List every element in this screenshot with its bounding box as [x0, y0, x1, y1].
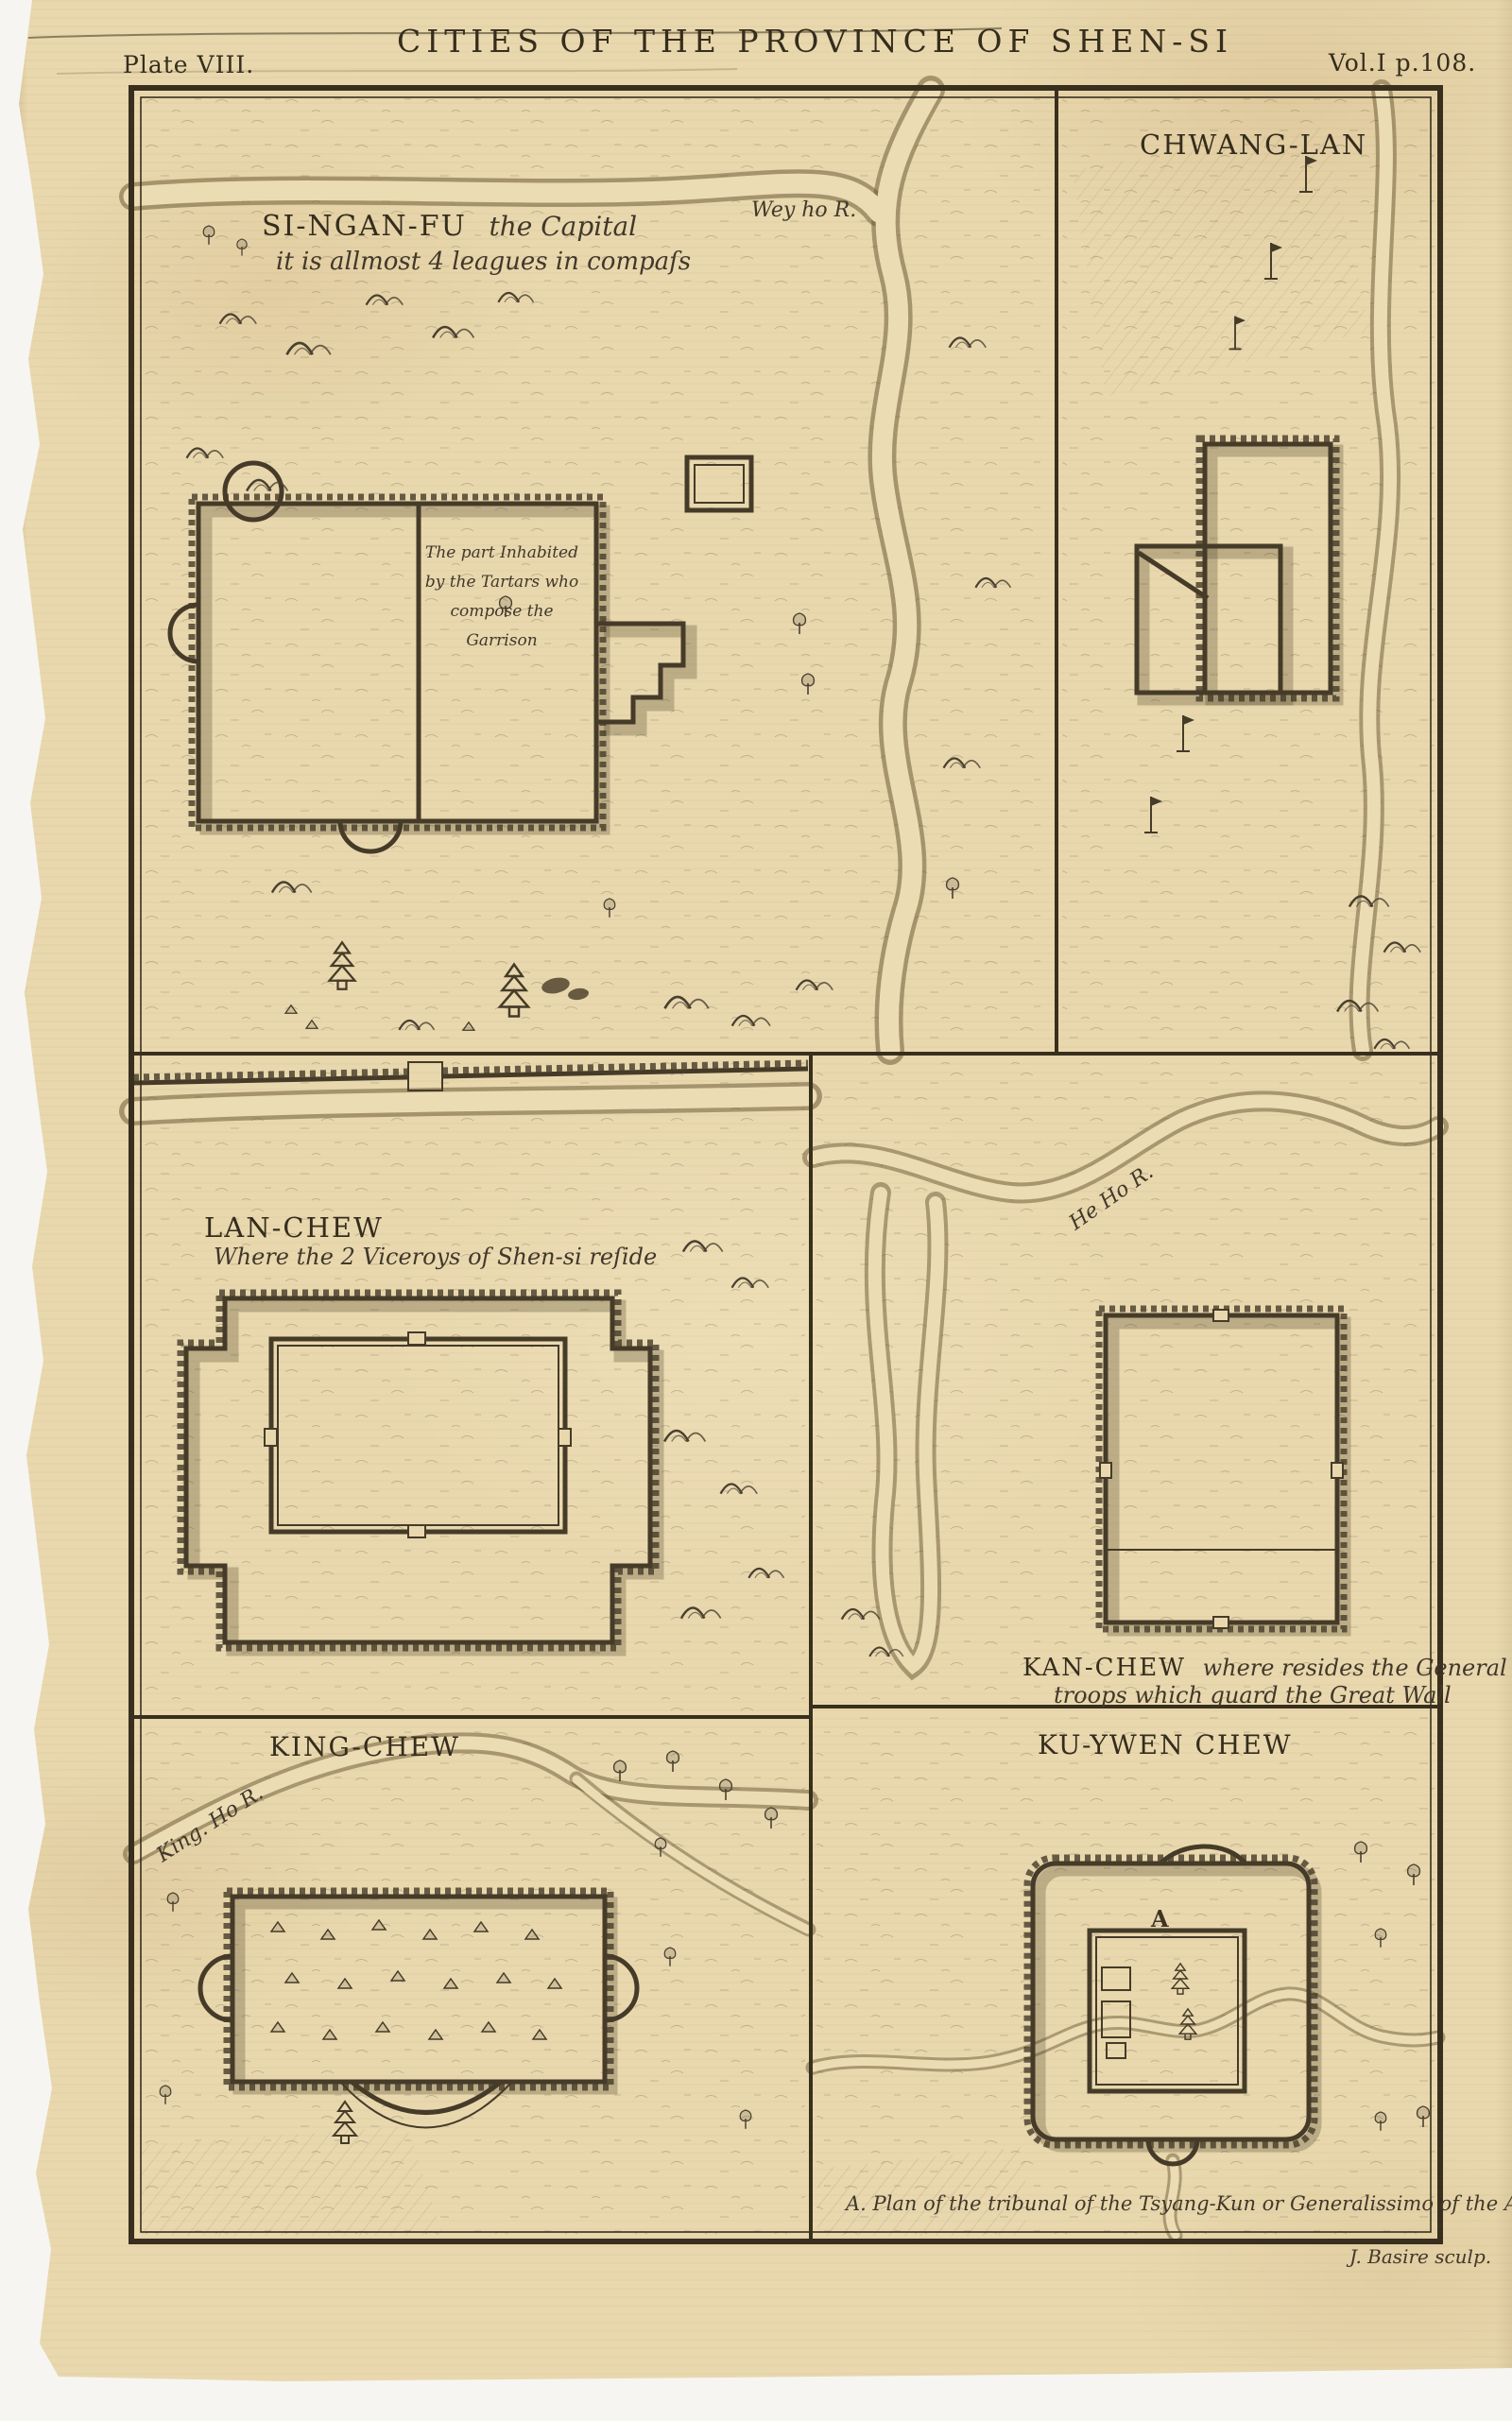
lan-chew-subtitle: Where the 2 Viceroys of Shen-si reſide — [214, 1244, 657, 1270]
engraver-signature: J. Basire sculp. — [1349, 2245, 1491, 2268]
plate-number: Plate VIII. — [123, 51, 254, 78]
chwang-lan-title: CHWANG-LAN — [1140, 129, 1367, 161]
map-engraving — [0, 0, 1512, 2421]
engraved-plate: Plate VIII. CITIES OF THE PROVINCE OF SH… — [0, 0, 1512, 2421]
si-ngan-fu-suffix: the Capital — [489, 211, 637, 242]
plate-title: CITIES OF THE PROVINCE OF SHEN-SI — [397, 23, 1153, 60]
lan-chew-title: LAN-CHEW — [204, 1211, 384, 1244]
volume-page-ref: Vol.I p.108. — [1329, 49, 1476, 77]
kan-chew-caption-line2: troops which guard the Great Wall — [1054, 1682, 1452, 1708]
ku-ywen-chew-title: KU-YWEN CHEW — [1038, 1729, 1293, 1760]
tartar-quarter-note: The part Inhabited by the Tartars who co… — [418, 539, 586, 656]
ku-ywen-chew-caption: A. Plan of the tribunal of the Tsyang-Ku… — [846, 2192, 1512, 2215]
citadel-marker-a: A — [1151, 1905, 1169, 1932]
kan-chew-caption-line1: KAN-CHEW where resides the General of th… — [1022, 1654, 1512, 1682]
si-ngan-fu-subtitle: it is allmost 4 leagues in compaſs — [276, 248, 691, 276]
si-ngan-fu-name: SI-NGAN-FU — [262, 210, 467, 243]
king-chew-title: KING-CHEW — [269, 1731, 460, 1762]
kan-chew-name: KAN-CHEW — [1022, 1654, 1186, 1682]
si-ngan-fu-title: SI-NGAN-FU the Capital — [262, 210, 637, 243]
wey-river-label: Wey ho R. — [751, 198, 856, 222]
